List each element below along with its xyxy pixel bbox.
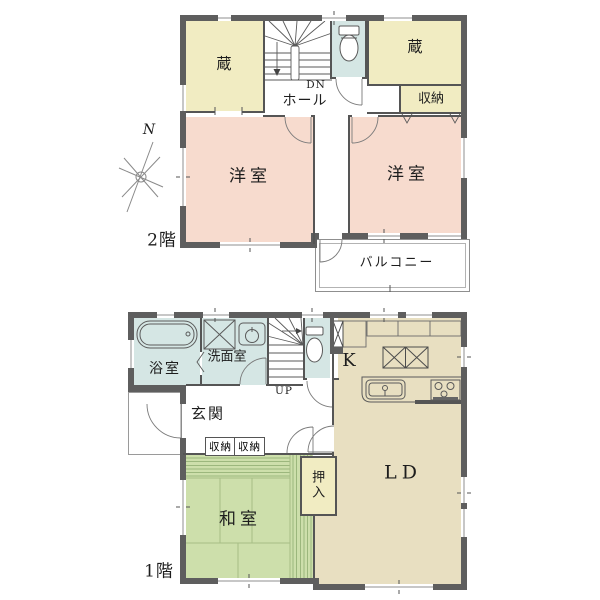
closet-box-b: 収納	[234, 437, 265, 456]
room-label-japanese-room: 和室	[219, 512, 261, 529]
window	[384, 15, 412, 21]
stairs-up-label: UP	[275, 386, 293, 397]
window	[461, 138, 467, 178]
room-label-futon-closet: 押入	[309, 470, 323, 500]
stairs-1f-icon	[267, 318, 303, 377]
room-label-bathroom: 浴室	[149, 362, 181, 376]
tatami-border-top	[183, 455, 290, 478]
window	[302, 312, 323, 318]
partition	[332, 77, 336, 79]
room-label-western-right: 洋室	[387, 167, 429, 184]
partition	[186, 384, 240, 386]
partition	[303, 378, 307, 380]
partition	[362, 77, 365, 79]
room-living-dining-ext	[315, 512, 334, 584]
room-kitchen-area	[338, 318, 461, 380]
stairs-2f-icon	[265, 21, 332, 80]
partition	[242, 111, 263, 113]
closet-a-label: 収納	[209, 439, 232, 454]
window	[218, 578, 280, 584]
window	[461, 347, 467, 367]
window	[203, 312, 229, 318]
partition	[313, 115, 315, 244]
room-toilet-1f	[305, 318, 330, 378]
partition	[348, 115, 350, 233]
wall-segment	[128, 385, 186, 392]
room-label-entrance: 玄関	[191, 407, 225, 422]
partition	[313, 512, 315, 578]
wall-segment	[330, 347, 343, 354]
partition	[399, 86, 401, 112]
room-label-living-dining: LD	[384, 464, 422, 483]
partition	[267, 318, 269, 385]
partition	[332, 378, 334, 425]
room-label-storage-right: 蔵	[407, 40, 422, 55]
window	[428, 233, 461, 239]
room-label-storage-left: 蔵	[216, 57, 231, 72]
compass-icon	[119, 142, 163, 212]
closet-box-a: 収納	[205, 437, 236, 456]
partition	[367, 84, 461, 86]
closet-b-label: 収納	[238, 439, 261, 454]
floor-2-label: 2階	[147, 233, 177, 250]
partition	[367, 112, 461, 114]
window	[370, 312, 398, 318]
window	[220, 242, 280, 248]
window	[180, 480, 186, 535]
room-label-western-left: 洋室	[229, 169, 271, 186]
wall-segment	[180, 392, 186, 404]
window	[180, 148, 186, 206]
partition	[330, 21, 332, 79]
room-label-balcony: バルコニー	[360, 257, 435, 270]
partition	[200, 318, 202, 352]
room-label-closet-2f: 収納	[418, 93, 444, 106]
partition	[303, 318, 305, 380]
window	[157, 312, 174, 318]
window	[461, 509, 467, 537]
window	[128, 340, 134, 368]
partition	[186, 111, 215, 113]
partition	[263, 21, 265, 113]
compass-north-label: N	[143, 123, 155, 137]
room-label-kitchen: K	[342, 352, 355, 370]
room-toilet-2f	[332, 21, 365, 77]
wall-segment	[315, 233, 319, 239]
window	[218, 15, 231, 21]
window	[406, 312, 432, 318]
stairs-down-label: DN	[306, 80, 326, 91]
wall-segment	[180, 15, 186, 248]
entrance-porch	[128, 392, 182, 455]
room-label-washroom: 洗面室	[207, 351, 246, 364]
floor-1-label: 1階	[144, 564, 174, 581]
partition	[332, 354, 334, 378]
partition	[378, 115, 461, 117]
partition	[367, 21, 369, 86]
partition	[263, 115, 285, 117]
room-label-hall: ホール	[283, 94, 328, 108]
wall-segment	[461, 15, 467, 239]
window	[365, 584, 433, 590]
window	[461, 477, 467, 503]
window	[322, 15, 346, 21]
floor-plan-canvas: 収納 収納 N 2階 蔵 蔵 DN ホール 収納 洋室 洋室 バルコニー 浴室 …	[0, 0, 600, 600]
window	[368, 233, 400, 239]
window	[180, 85, 186, 111]
